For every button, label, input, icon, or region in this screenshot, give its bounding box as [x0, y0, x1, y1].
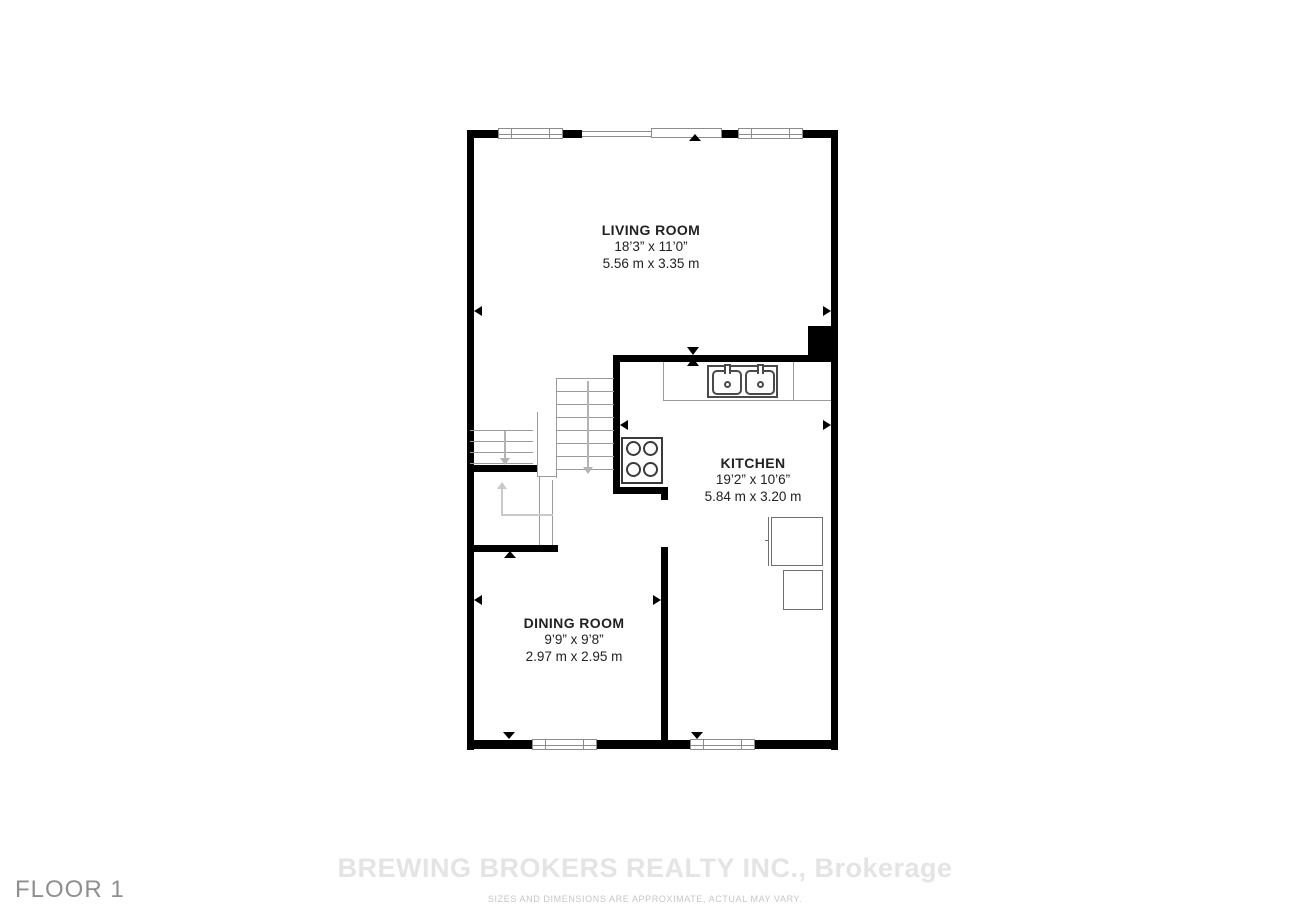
wall-bottom-segment	[467, 740, 532, 749]
marker-kitchen-right-icon	[823, 420, 831, 430]
stove-burner	[643, 441, 658, 456]
marker-kitchen-opening-bottom-icon	[687, 358, 699, 366]
dining-room-label: DINING ROOM 9’9” x 9’8” 2.97 m x 2.95 m	[474, 615, 674, 665]
marker-kitchen-left-icon	[620, 420, 628, 430]
counter-left-line	[663, 362, 664, 400]
stair-arrow-down-icon	[583, 467, 593, 474]
kitchen-top-wall	[613, 355, 831, 362]
top-opening-sill	[651, 128, 722, 138]
sink-drain-left	[724, 381, 731, 388]
stove-burner	[626, 462, 641, 477]
window-frame-divider	[789, 129, 790, 138]
wall-bottom-segment	[597, 740, 690, 749]
window-top-left	[498, 128, 563, 139]
window-top-right	[738, 128, 803, 139]
window-frame-divider	[741, 740, 742, 749]
marker-living-left-icon	[474, 306, 482, 316]
wall-top-segment	[722, 130, 738, 138]
sink-faucet-left	[724, 364, 731, 374]
stove-burner	[626, 441, 641, 456]
window-frame-divider	[545, 740, 546, 749]
window-pane-line	[691, 745, 754, 746]
room-name: LIVING ROOM	[551, 222, 751, 239]
stair-landing-line	[552, 480, 553, 545]
stair-landing-line	[539, 477, 540, 545]
marker-bottom-left-icon	[503, 732, 515, 739]
room-dimensions-metric: 5.84 m x 3.20 m	[653, 489, 853, 506]
dimensions-disclaimer: SIZES AND DIMENSIONS ARE APPROXIMATE, AC…	[0, 894, 1290, 904]
window-bottom-left	[532, 739, 597, 750]
marker-living-right-icon	[823, 306, 831, 316]
top-opening-railing	[582, 131, 651, 137]
stair-arrow-down-stem	[504, 431, 506, 459]
marker-kitchen-opening-top-icon	[687, 347, 699, 355]
cabinet	[783, 570, 823, 610]
marker-dining-left-icon	[474, 595, 482, 605]
stair-arrow-up-stem	[501, 488, 503, 516]
window-pane-line	[533, 745, 596, 746]
counter-divider-line	[793, 362, 794, 400]
window-frame-divider	[511, 129, 512, 138]
marker-stair-wall-icon	[504, 551, 516, 558]
marker-dining-right-icon	[653, 595, 661, 605]
refrigerator-door-line	[768, 517, 769, 566]
floor-label: FLOOR 1	[15, 876, 125, 904]
room-dimensions-metric: 2.97 m x 2.95 m	[474, 649, 674, 666]
wall-bottom-segment	[755, 740, 838, 749]
window-frame-divider	[549, 129, 550, 138]
refrigerator-handle	[765, 540, 769, 541]
window-pane-line	[499, 134, 562, 135]
stair-rail-line	[537, 412, 538, 476]
stair-run-right-treads	[556, 378, 614, 478]
room-dimensions-imperial: 18’3” x 11’0”	[551, 239, 751, 256]
sink-drain-right	[757, 381, 764, 388]
wall-right	[831, 130, 838, 750]
marker-top-opening-icon	[689, 134, 701, 141]
room-name: DINING ROOM	[474, 615, 674, 632]
window-frame-divider	[703, 740, 704, 749]
counter-front-line	[663, 400, 831, 401]
chimney-block	[808, 326, 831, 356]
room-name: KITCHEN	[653, 455, 853, 472]
room-dimensions-imperial: 9’9” x 9’8”	[474, 632, 674, 649]
window-pane-line	[739, 134, 802, 135]
stair-arrow-up-stem	[501, 514, 553, 516]
kitchen-left-wall	[613, 355, 620, 493]
marker-bottom-right-icon	[691, 732, 703, 739]
stair-arrow-down-icon	[500, 458, 510, 465]
room-dimensions-metric: 5.56 m x 3.35 m	[551, 256, 751, 273]
brokerage-watermark: BREWING BROKERS REALTY INC., Brokerage	[0, 853, 1290, 884]
stair-rail-cap	[537, 476, 557, 477]
sink-faucet-right	[757, 364, 764, 374]
room-dimensions-imperial: 19’2” x 10’6”	[653, 472, 853, 489]
floor-plan-page: LIVING ROOM 18’3” x 11’0” 5.56 m x 3.35 …	[0, 0, 1300, 919]
window-frame-divider	[751, 129, 752, 138]
wall-top-segment	[563, 130, 582, 138]
window-frame-divider	[583, 740, 584, 749]
living-room-label: LIVING ROOM 18’3” x 11’0” 5.56 m x 3.35 …	[551, 222, 751, 272]
stair-arrow-down-stem	[587, 381, 589, 468]
kitchen-label: KITCHEN 19’2” x 10’6” 5.84 m x 3.20 m	[653, 455, 853, 505]
refrigerator	[771, 517, 823, 566]
window-bottom-right	[690, 739, 755, 750]
